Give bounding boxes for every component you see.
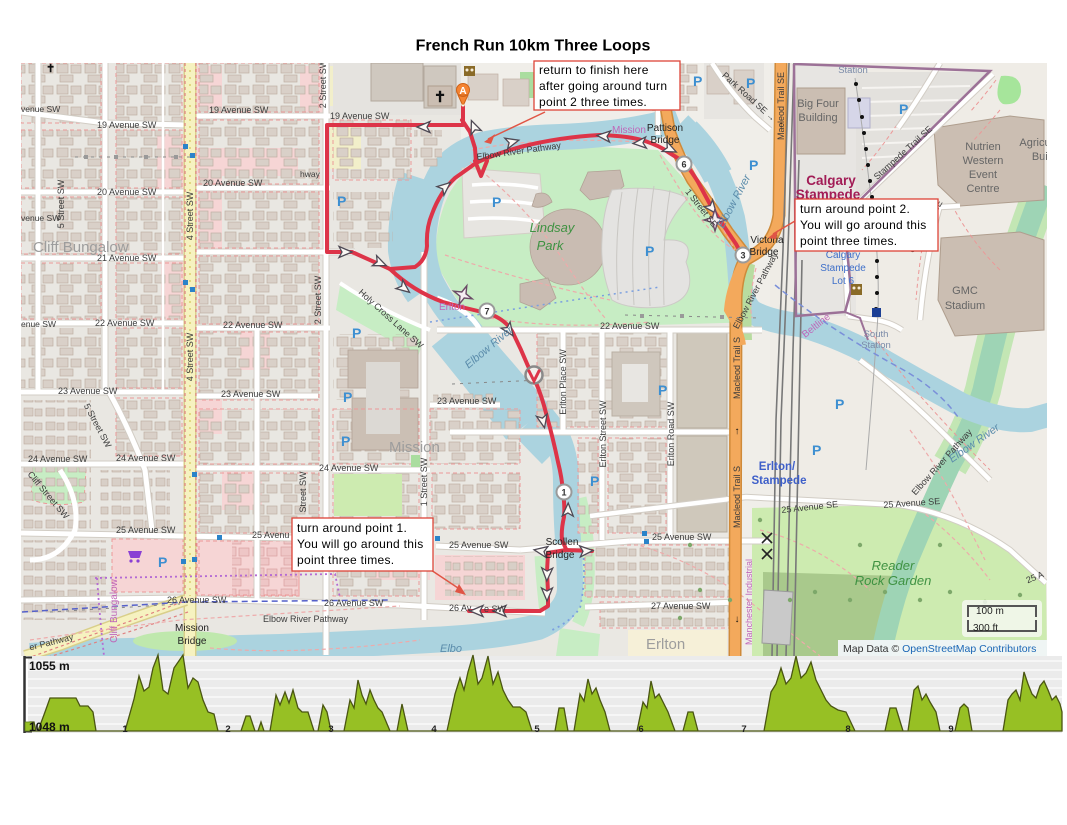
svg-text:Reader: Reader: [872, 558, 915, 573]
svg-text:venue SW: venue SW: [21, 213, 60, 223]
svg-text:P: P: [352, 325, 361, 341]
svg-text:after going around turn: after going around turn: [539, 79, 667, 93]
svg-text:Erlton Road SW: Erlton Road SW: [666, 401, 676, 466]
svg-text:Map Data © OpenStreetMap Contr: Map Data © OpenStreetMap Contributors: [843, 643, 1036, 655]
svg-text:P: P: [749, 157, 758, 173]
svg-text:5 Street SW: 5 Street SW: [56, 179, 66, 228]
svg-text:22 Avenue SW: 22 Avenue SW: [600, 321, 660, 331]
svg-text:Victoria: Victoria: [750, 235, 784, 246]
svg-text:19 Avenue SW: 19 Avenue SW: [209, 105, 269, 115]
svg-text:25 Avenue SW: 25 Avenue SW: [449, 540, 509, 550]
svg-text:↑: ↑: [735, 426, 740, 437]
svg-text:8: 8: [845, 724, 850, 735]
svg-text:4 Street SW: 4 Street SW: [185, 332, 195, 381]
svg-text:2 Street SW: 2 Street SW: [318, 59, 328, 108]
svg-text:24 Avenue SW: 24 Avenue SW: [28, 454, 88, 464]
svg-text:20 Avenue SW: 20 Avenue SW: [203, 178, 263, 188]
svg-text:Macleod Trail S: Macleod Trail S: [732, 337, 742, 399]
svg-text:GMC: GMC: [952, 285, 978, 297]
svg-text:4 Street SW: 4 Street SW: [185, 191, 195, 240]
svg-text:✝: ✝: [434, 89, 447, 106]
svg-text:P: P: [812, 442, 821, 458]
svg-text:↑: ↑: [779, 120, 784, 131]
svg-text:5: 5: [534, 724, 540, 735]
svg-text:26 Av: 26 Av: [449, 603, 472, 613]
svg-text:French Run 10km Three Loops: French Run 10km Three Loops: [416, 38, 651, 55]
svg-text:Manchester Industrial: Manchester Industrial: [744, 559, 754, 645]
svg-text:19 Avenue SW: 19 Avenue SW: [97, 120, 157, 130]
svg-text:Bridge: Bridge: [651, 135, 680, 146]
svg-text:25 Avenue SW: 25 Avenue SW: [652, 532, 712, 542]
svg-text:P: P: [492, 194, 501, 210]
svg-text:26 Avenue SW: 26 Avenue SW: [324, 598, 384, 608]
svg-text:20 Avenue SW: 20 Avenue SW: [97, 187, 157, 197]
svg-text:Centre: Centre: [966, 183, 999, 195]
svg-text:Cliff Bungalow: Cliff Bungalow: [33, 239, 129, 256]
svg-text:point 2 three times.: point 2 three times.: [539, 95, 647, 109]
svg-text:Bridge: Bridge: [178, 636, 207, 647]
svg-text:enue SW: enue SW: [21, 319, 56, 329]
svg-text:2: 2: [225, 724, 230, 735]
svg-text:1: 1: [122, 724, 128, 735]
svg-text:P: P: [899, 101, 908, 117]
svg-text:9: 9: [948, 724, 953, 735]
svg-text:Erlton: Erlton: [646, 636, 685, 653]
svg-text:point three times.: point three times.: [800, 234, 897, 248]
svg-text:Stampede: Stampede: [820, 263, 866, 274]
svg-text:22 Avenue SW: 22 Avenue SW: [223, 320, 283, 330]
svg-text:19 Avenue SW: 19 Avenue SW: [330, 111, 390, 121]
svg-text:P: P: [835, 396, 844, 412]
svg-text:22 Avenue SW: 22 Avenue SW: [95, 318, 155, 328]
svg-text:Building: Building: [798, 112, 837, 124]
svg-text:Rock Garden: Rock Garden: [855, 573, 932, 588]
svg-text:Bridge: Bridge: [546, 550, 575, 561]
svg-text:Station: Station: [861, 340, 891, 351]
svg-text:Stampede: Stampede: [752, 475, 807, 487]
svg-text:23 Avenue SW: 23 Avenue SW: [437, 396, 497, 406]
svg-text:P: P: [343, 389, 352, 405]
svg-text:25 Avenue SW: 25 Avenue SW: [116, 525, 176, 535]
svg-text:24 Avenue SW: 24 Avenue SW: [116, 453, 176, 463]
svg-text:27 Avenue SW: 27 Avenue SW: [651, 601, 711, 611]
svg-text:Erlton/: Erlton/: [759, 461, 796, 473]
svg-text:25 Avenu: 25 Avenu: [252, 530, 289, 540]
svg-text:turn around point 1.: turn around point 1.: [297, 521, 407, 535]
svg-text:Agricu: Agricu: [1019, 137, 1050, 149]
svg-text:Elbow River Pathway: Elbow River Pathway: [263, 614, 349, 624]
svg-text:Pattison: Pattison: [647, 123, 683, 134]
svg-text:A: A: [459, 86, 466, 97]
svg-text:Nutrien: Nutrien: [965, 141, 1000, 153]
svg-text:point three times.: point three times.: [297, 553, 394, 567]
svg-text:26 Avenue SW: 26 Avenue SW: [167, 595, 227, 605]
svg-text:Lindsay: Lindsay: [530, 220, 576, 235]
svg-text:hway: hway: [300, 169, 321, 179]
svg-text:P: P: [693, 73, 702, 89]
svg-text:You will go around this: You will go around this: [297, 537, 424, 551]
svg-text:Mission: Mission: [612, 125, 646, 136]
svg-text:23 Avenue SW: 23 Avenue SW: [221, 389, 281, 399]
svg-text:100 m: 100 m: [976, 606, 1004, 617]
svg-text:3: 3: [328, 724, 333, 735]
svg-text:Street SW: Street SW: [298, 471, 308, 513]
svg-text:Big Four: Big Four: [797, 98, 839, 110]
svg-text:Cliff Bungalow: Cliff Bungalow: [109, 578, 120, 643]
svg-text:4: 4: [431, 724, 437, 735]
svg-text:24 Avenue SW: 24 Avenue SW: [319, 463, 379, 473]
svg-text:Bridge: Bridge: [750, 247, 779, 258]
svg-text:Mission: Mission: [175, 623, 209, 634]
svg-text:Erlton Place SW: Erlton Place SW: [558, 349, 568, 415]
svg-text:2 Street SW: 2 Street SW: [313, 275, 323, 324]
svg-text:return to finish here: return to finish here: [539, 63, 649, 77]
svg-text:Lot 6: Lot 6: [832, 276, 855, 287]
svg-text:1 Street SW: 1 Street SW: [419, 457, 429, 506]
svg-text:6: 6: [638, 724, 643, 735]
svg-text:7: 7: [741, 724, 746, 735]
svg-text:1048 m: 1048 m: [29, 720, 70, 734]
svg-text:Park: Park: [537, 238, 565, 253]
svg-text:Macleod Trail S: Macleod Trail S: [732, 466, 742, 528]
svg-text:P: P: [645, 243, 654, 259]
svg-text:Erlton Street SW: Erlton Street SW: [598, 400, 608, 468]
svg-text:Erlton: Erlton: [439, 302, 465, 313]
svg-text:South: South: [864, 329, 889, 340]
svg-text:venue SW: venue SW: [21, 104, 60, 114]
svg-text:6: 6: [681, 160, 686, 170]
svg-text:3: 3: [740, 251, 745, 261]
svg-text:P: P: [341, 433, 350, 449]
svg-text:Scollen: Scollen: [546, 537, 579, 548]
svg-text:1: 1: [561, 488, 566, 498]
svg-text:Station: Station: [838, 65, 868, 76]
svg-text:↓: ↓: [735, 614, 740, 625]
svg-text:Western: Western: [963, 155, 1004, 167]
svg-text:e SW: e SW: [484, 604, 507, 614]
svg-text:1055 m: 1055 m: [29, 659, 70, 673]
svg-text:Mission: Mission: [389, 439, 440, 456]
svg-text:You will go around this: You will go around this: [800, 218, 927, 232]
svg-text:P: P: [158, 554, 167, 570]
svg-text:P: P: [658, 382, 667, 398]
svg-text:✝: ✝: [46, 63, 55, 75]
svg-text:Calgary: Calgary: [806, 173, 856, 188]
svg-text:turn around point 2.: turn around point 2.: [800, 202, 910, 216]
svg-text:300 ft: 300 ft: [973, 623, 998, 634]
svg-text:23 Avenue SW: 23 Avenue SW: [58, 386, 118, 396]
svg-text:7: 7: [484, 307, 489, 317]
svg-text:P: P: [590, 473, 599, 489]
svg-text:Event: Event: [969, 169, 997, 181]
svg-text:Stadium: Stadium: [945, 300, 985, 312]
svg-text:P: P: [337, 193, 346, 209]
svg-text:Elbo: Elbo: [440, 643, 462, 655]
